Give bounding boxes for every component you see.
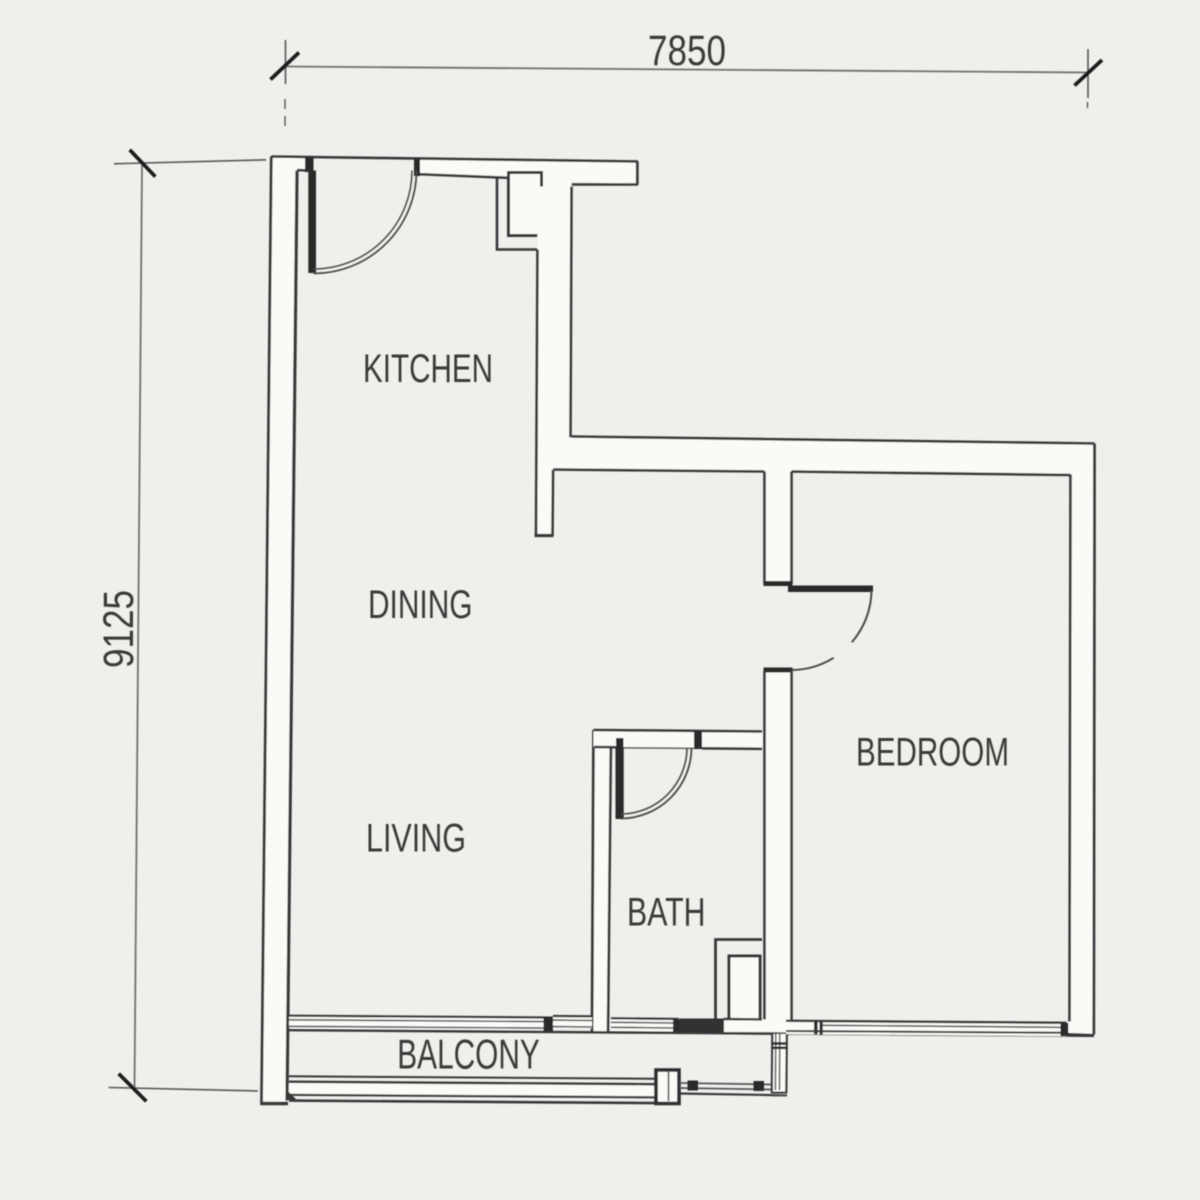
svg-text:7850: 7850 — [648, 27, 726, 75]
svg-text:LIVING: LIVING — [366, 817, 466, 861]
svg-text:BATH: BATH — [627, 891, 706, 935]
svg-text:BALCONY: BALCONY — [397, 1031, 540, 1078]
svg-text:BEDROOM: BEDROOM — [856, 731, 1009, 775]
svg-text:9125: 9125 — [95, 590, 143, 668]
svg-text:KITCHEN: KITCHEN — [363, 347, 493, 391]
svg-text:DINING: DINING — [368, 583, 473, 627]
